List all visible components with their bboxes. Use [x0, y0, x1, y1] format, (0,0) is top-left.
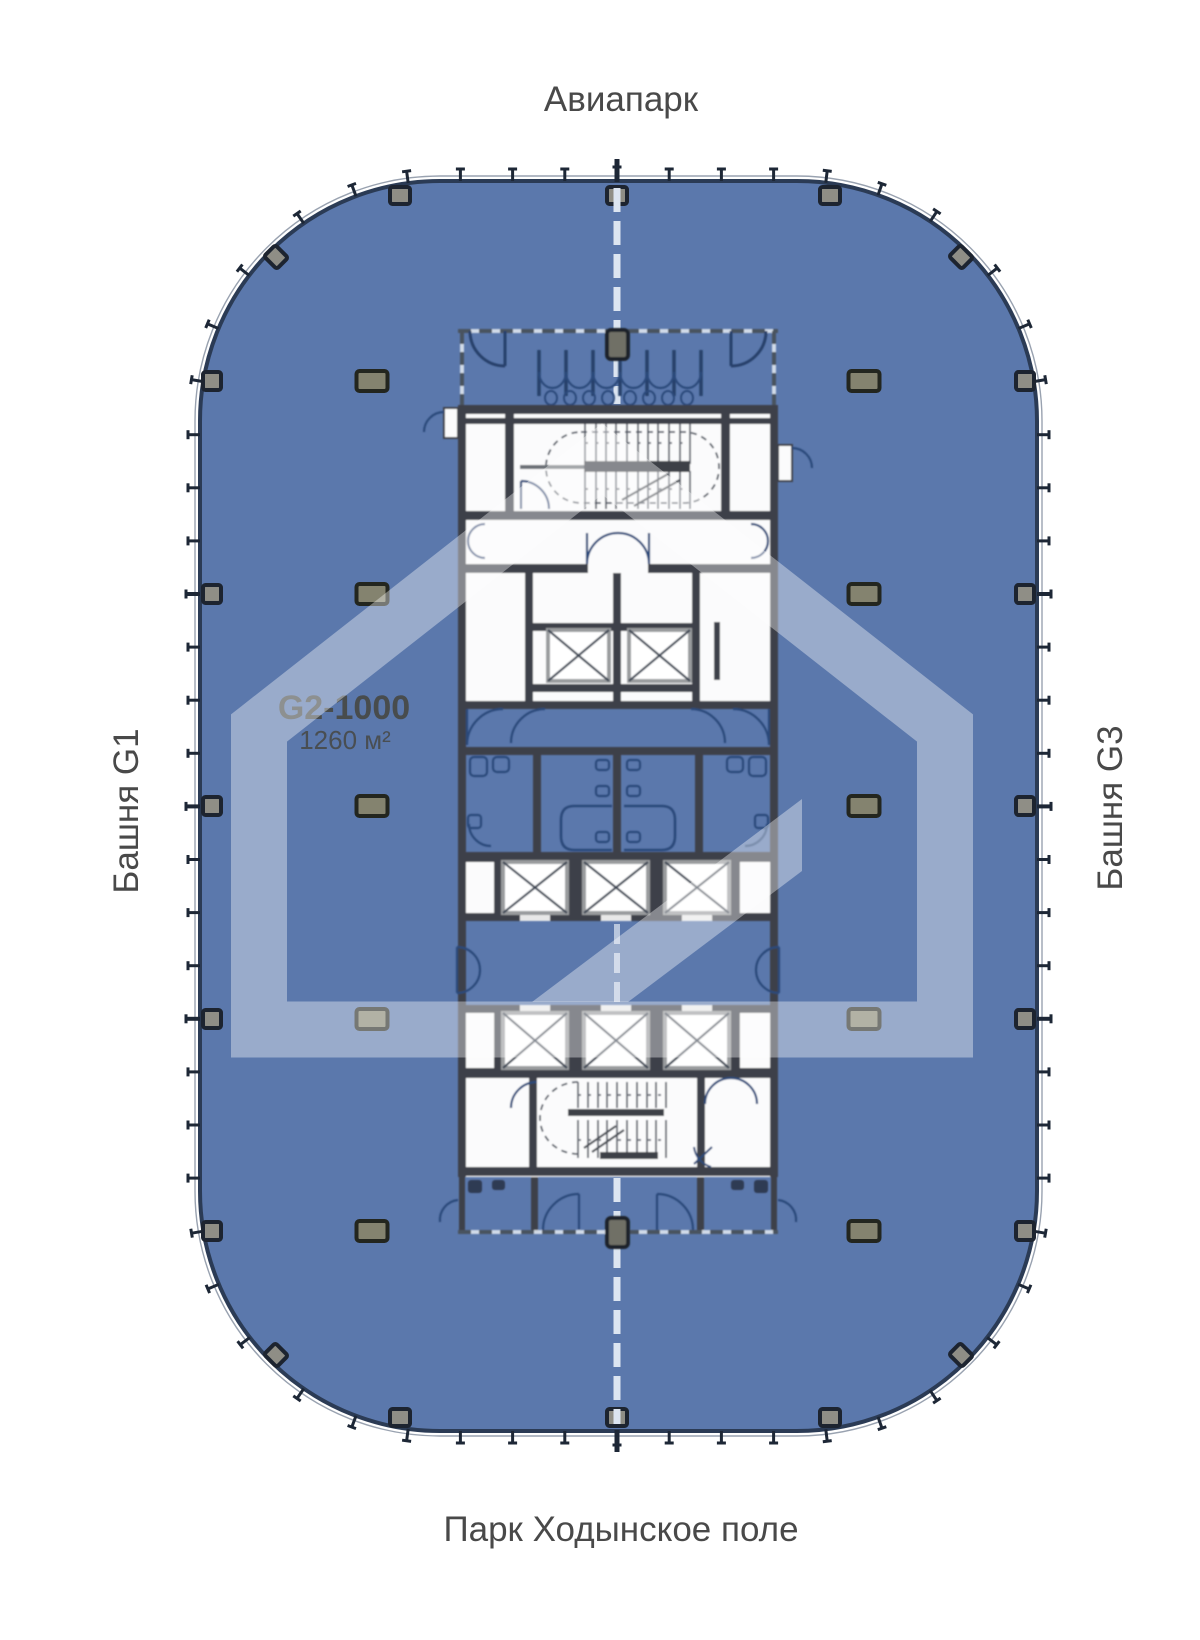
svg-text:Парк Ходынское поле: Парк Ходынское поле — [443, 1510, 798, 1549]
svg-text:Башня G1: Башня G1 — [107, 728, 146, 893]
svg-text:Башня G3: Башня G3 — [1091, 725, 1130, 890]
svg-text:Авиапарк: Авиапарк — [544, 80, 699, 119]
svg-text:1260 м²: 1260 м² — [299, 725, 391, 755]
